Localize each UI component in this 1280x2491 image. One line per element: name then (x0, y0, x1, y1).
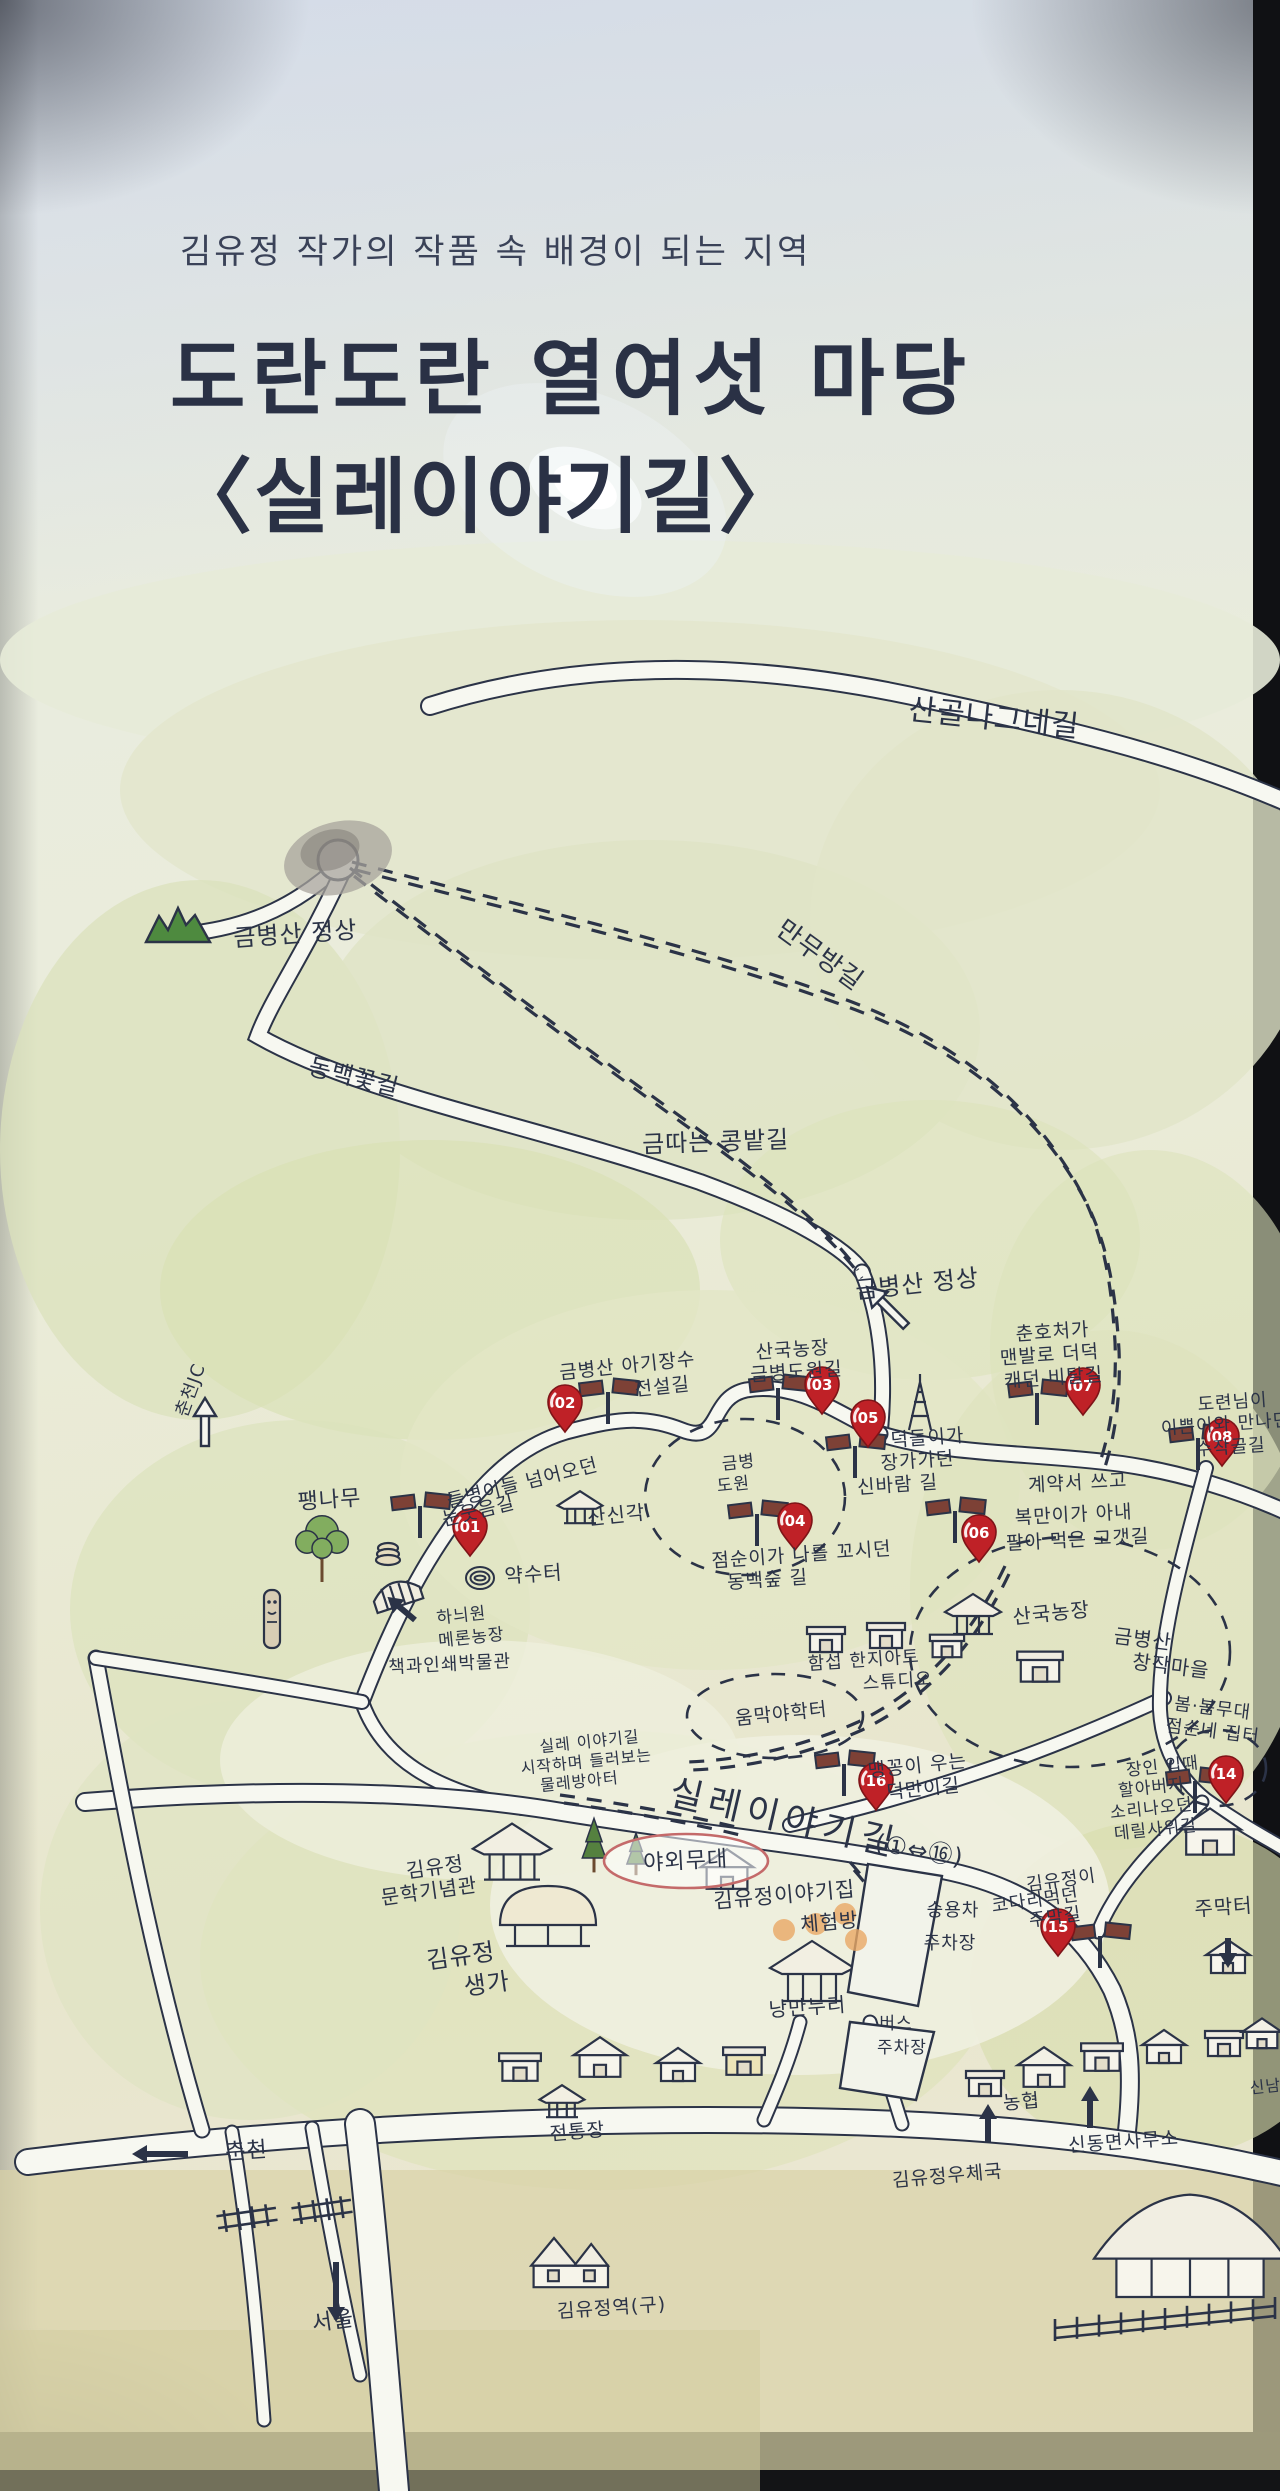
building-roof (723, 2047, 765, 2055)
pin-number: 02 (555, 1394, 576, 1412)
building-icon (723, 2047, 765, 2075)
car-parking-line2: 주차장 (924, 1933, 977, 1954)
hand-drawn-map: 0102030405060708141516 산골나그네길만무방길금병산 정상동… (0, 0, 1280, 2491)
to-chuncheon: 춘천 (224, 2138, 268, 2166)
trail-geumttaneun-kongbat: 금따는 콩밭길 (642, 1125, 790, 1158)
experience-room: 체험방 (799, 1908, 859, 1937)
house-door (1159, 2053, 1169, 2063)
building-icon (1017, 1652, 1063, 1682)
building-roof (1081, 2043, 1123, 2051)
building-roof (1205, 2031, 1243, 2038)
thatched-house-icon (500, 1886, 596, 1946)
pin-number: 04 (785, 1512, 806, 1530)
house-door (1258, 2039, 1267, 2048)
highlight-dot (773, 1919, 795, 1941)
signpost-board (826, 1435, 850, 1451)
tree-foliage (312, 1538, 332, 1558)
building-door (880, 1636, 892, 1648)
nonghyup: 농협 (1002, 2089, 1041, 2114)
jangseung-totem-icon (264, 1590, 280, 1648)
signpost-board (728, 1503, 752, 1519)
station-window (584, 2270, 595, 2281)
signpost-board (959, 1497, 985, 1514)
building-icon (499, 2053, 541, 2081)
building-door (1095, 2058, 1108, 2071)
building-roof (807, 1627, 845, 1634)
bus-parking-line2: 주차장 (877, 2038, 927, 2058)
building-icon (867, 1623, 905, 1648)
signpost-board (579, 1381, 603, 1397)
building-door (1218, 2044, 1230, 2056)
station-window (548, 2270, 559, 2281)
house-door (673, 2071, 683, 2081)
house-door (1038, 2075, 1050, 2087)
yaksuteo: 약수터 (504, 1560, 564, 1588)
beehive-icon (376, 1543, 400, 1565)
station-body (534, 2266, 608, 2288)
jumakteo: 주막터 (1194, 1893, 1254, 1921)
building-roof (930, 1635, 964, 1641)
totem-eye (267, 1600, 271, 1604)
outdoor-stage: 야외무대 (643, 1847, 729, 1876)
building-roof (1017, 1652, 1063, 1660)
signpost-board (815, 1753, 839, 1769)
car-parking-line1: 승용차 (927, 1900, 980, 1921)
poster-photo: 0102030405060708141516 산골나그네길만무방길금병산 정상동… (0, 0, 1280, 2491)
geumbyeong-dowon-line1: 금병 (721, 1451, 756, 1474)
hive-layer (376, 1555, 400, 1565)
building-door (1033, 1667, 1047, 1681)
building-roof (867, 1623, 905, 1630)
building-door (979, 2084, 991, 2096)
signpost-board (1104, 1922, 1130, 1939)
building-door (737, 2062, 750, 2075)
totem-body (264, 1590, 280, 1648)
signpost-board (926, 1500, 950, 1516)
to-sinnam: 신남 (1249, 2075, 1280, 2097)
signpost-board (391, 1495, 415, 1511)
building-icon (807, 1627, 845, 1652)
building-icon (930, 1635, 964, 1658)
house-door (1203, 1841, 1217, 1855)
house-door (594, 2065, 606, 2077)
arrow-shaft (201, 1414, 209, 1446)
map-poster: 0102030405060708141516 산골나그네길만무방길금병산 정상동… (0, 0, 1280, 2491)
building-icon (966, 2071, 1004, 2096)
pin-number: 06 (969, 1524, 990, 1542)
bus-parking-line1: 버스 (879, 2014, 912, 2034)
pin-number: 14 (1216, 1765, 1237, 1783)
building-door (820, 1640, 832, 1652)
pin-number: 05 (858, 1409, 879, 1427)
building-roof (966, 2071, 1004, 2078)
totem-eye (273, 1600, 277, 1604)
building-roof (499, 2053, 541, 2061)
building-icon (1205, 2031, 1243, 2056)
geumbyeong-dowon-line2: 도원 (716, 1473, 751, 1496)
building-door (942, 1646, 953, 1657)
building-icon (1081, 2043, 1123, 2071)
ummak-yahakteo: 움막야학터 (734, 1698, 828, 1730)
paengnamu: 팽나무 (297, 1486, 362, 1515)
building-door (513, 2068, 526, 2081)
arrow-head (979, 2104, 997, 2119)
